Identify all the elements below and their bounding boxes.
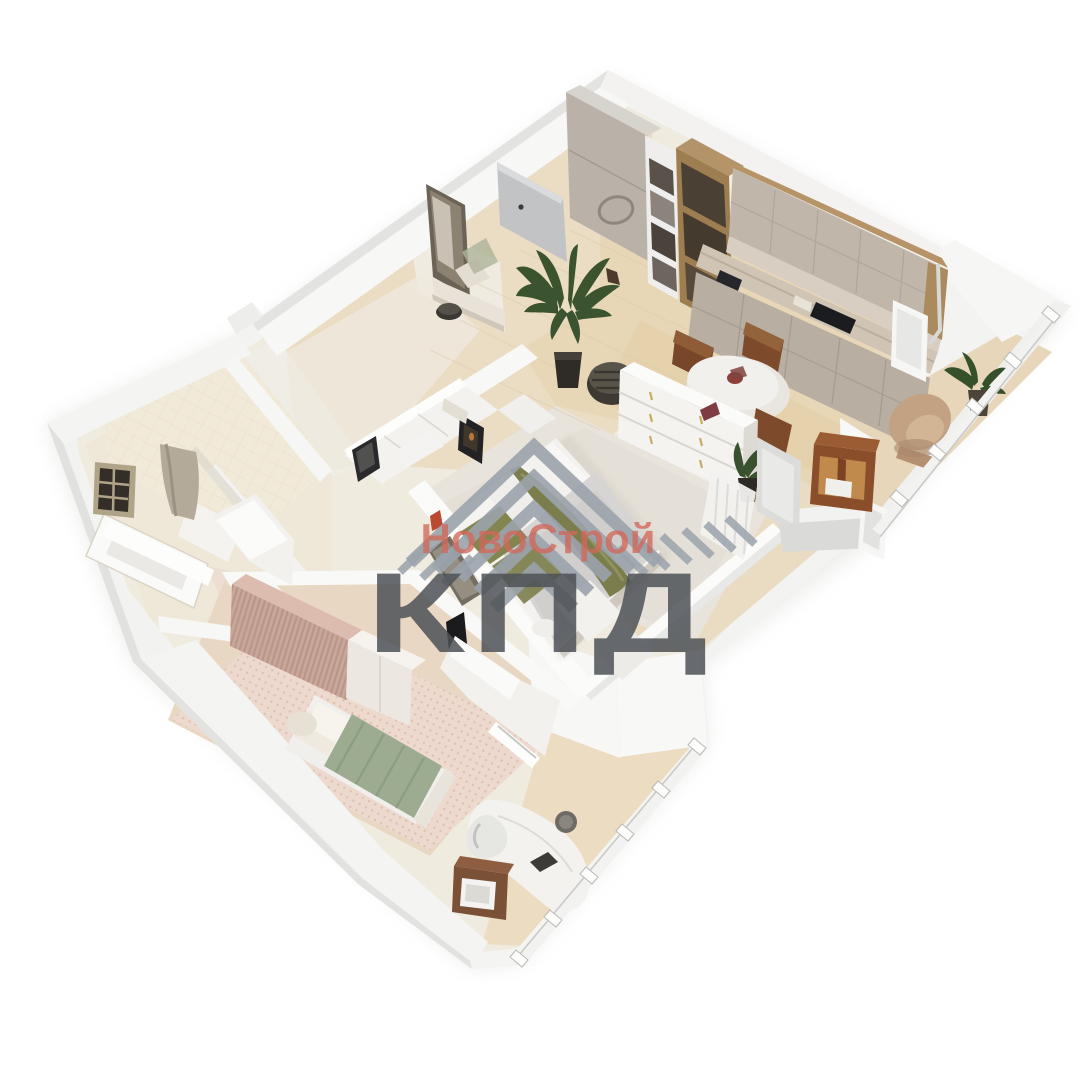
svg-text:КПД: КПД bbox=[366, 549, 714, 677]
